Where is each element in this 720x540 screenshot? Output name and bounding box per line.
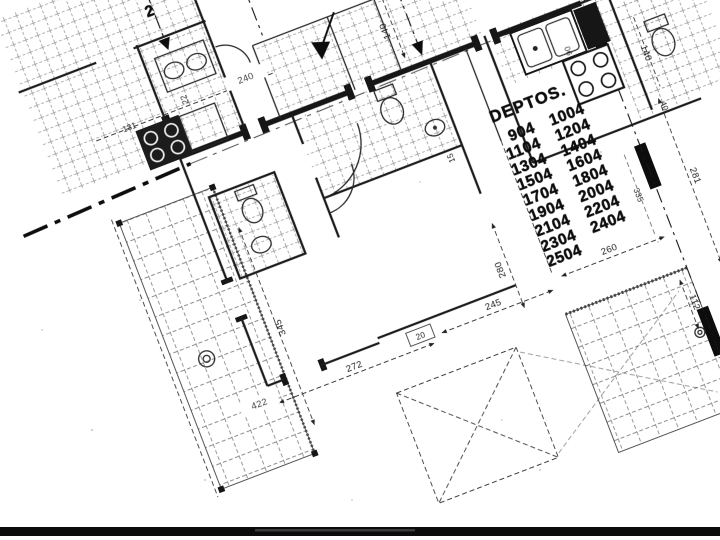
dim-label-245: 245 <box>484 297 504 313</box>
wall-room-bottoms <box>266 285 518 386</box>
floor-plan-canvas: 240 131 22 140 90 40 15 140 20 272 245 2… <box>0 0 720 540</box>
dim-label-272: 272 <box>345 359 365 375</box>
floor-plan: 240 131 22 140 90 40 15 140 20 272 245 2… <box>0 0 720 540</box>
wall-dining <box>465 48 501 141</box>
dim-label-15: 15 <box>445 152 457 164</box>
dim-label-281: 281 <box>687 166 703 186</box>
scan-edge-bar-highlight <box>255 529 415 532</box>
dim-label-280: 280 <box>493 260 509 280</box>
dim-label-20: 20 <box>415 330 427 342</box>
dim-label-345: 345 <box>273 317 289 337</box>
dim-label-335: 335 <box>631 187 645 204</box>
scanned-floor-plan-page: 240 131 22 140 90 40 15 140 20 272 245 2… <box>0 0 720 540</box>
